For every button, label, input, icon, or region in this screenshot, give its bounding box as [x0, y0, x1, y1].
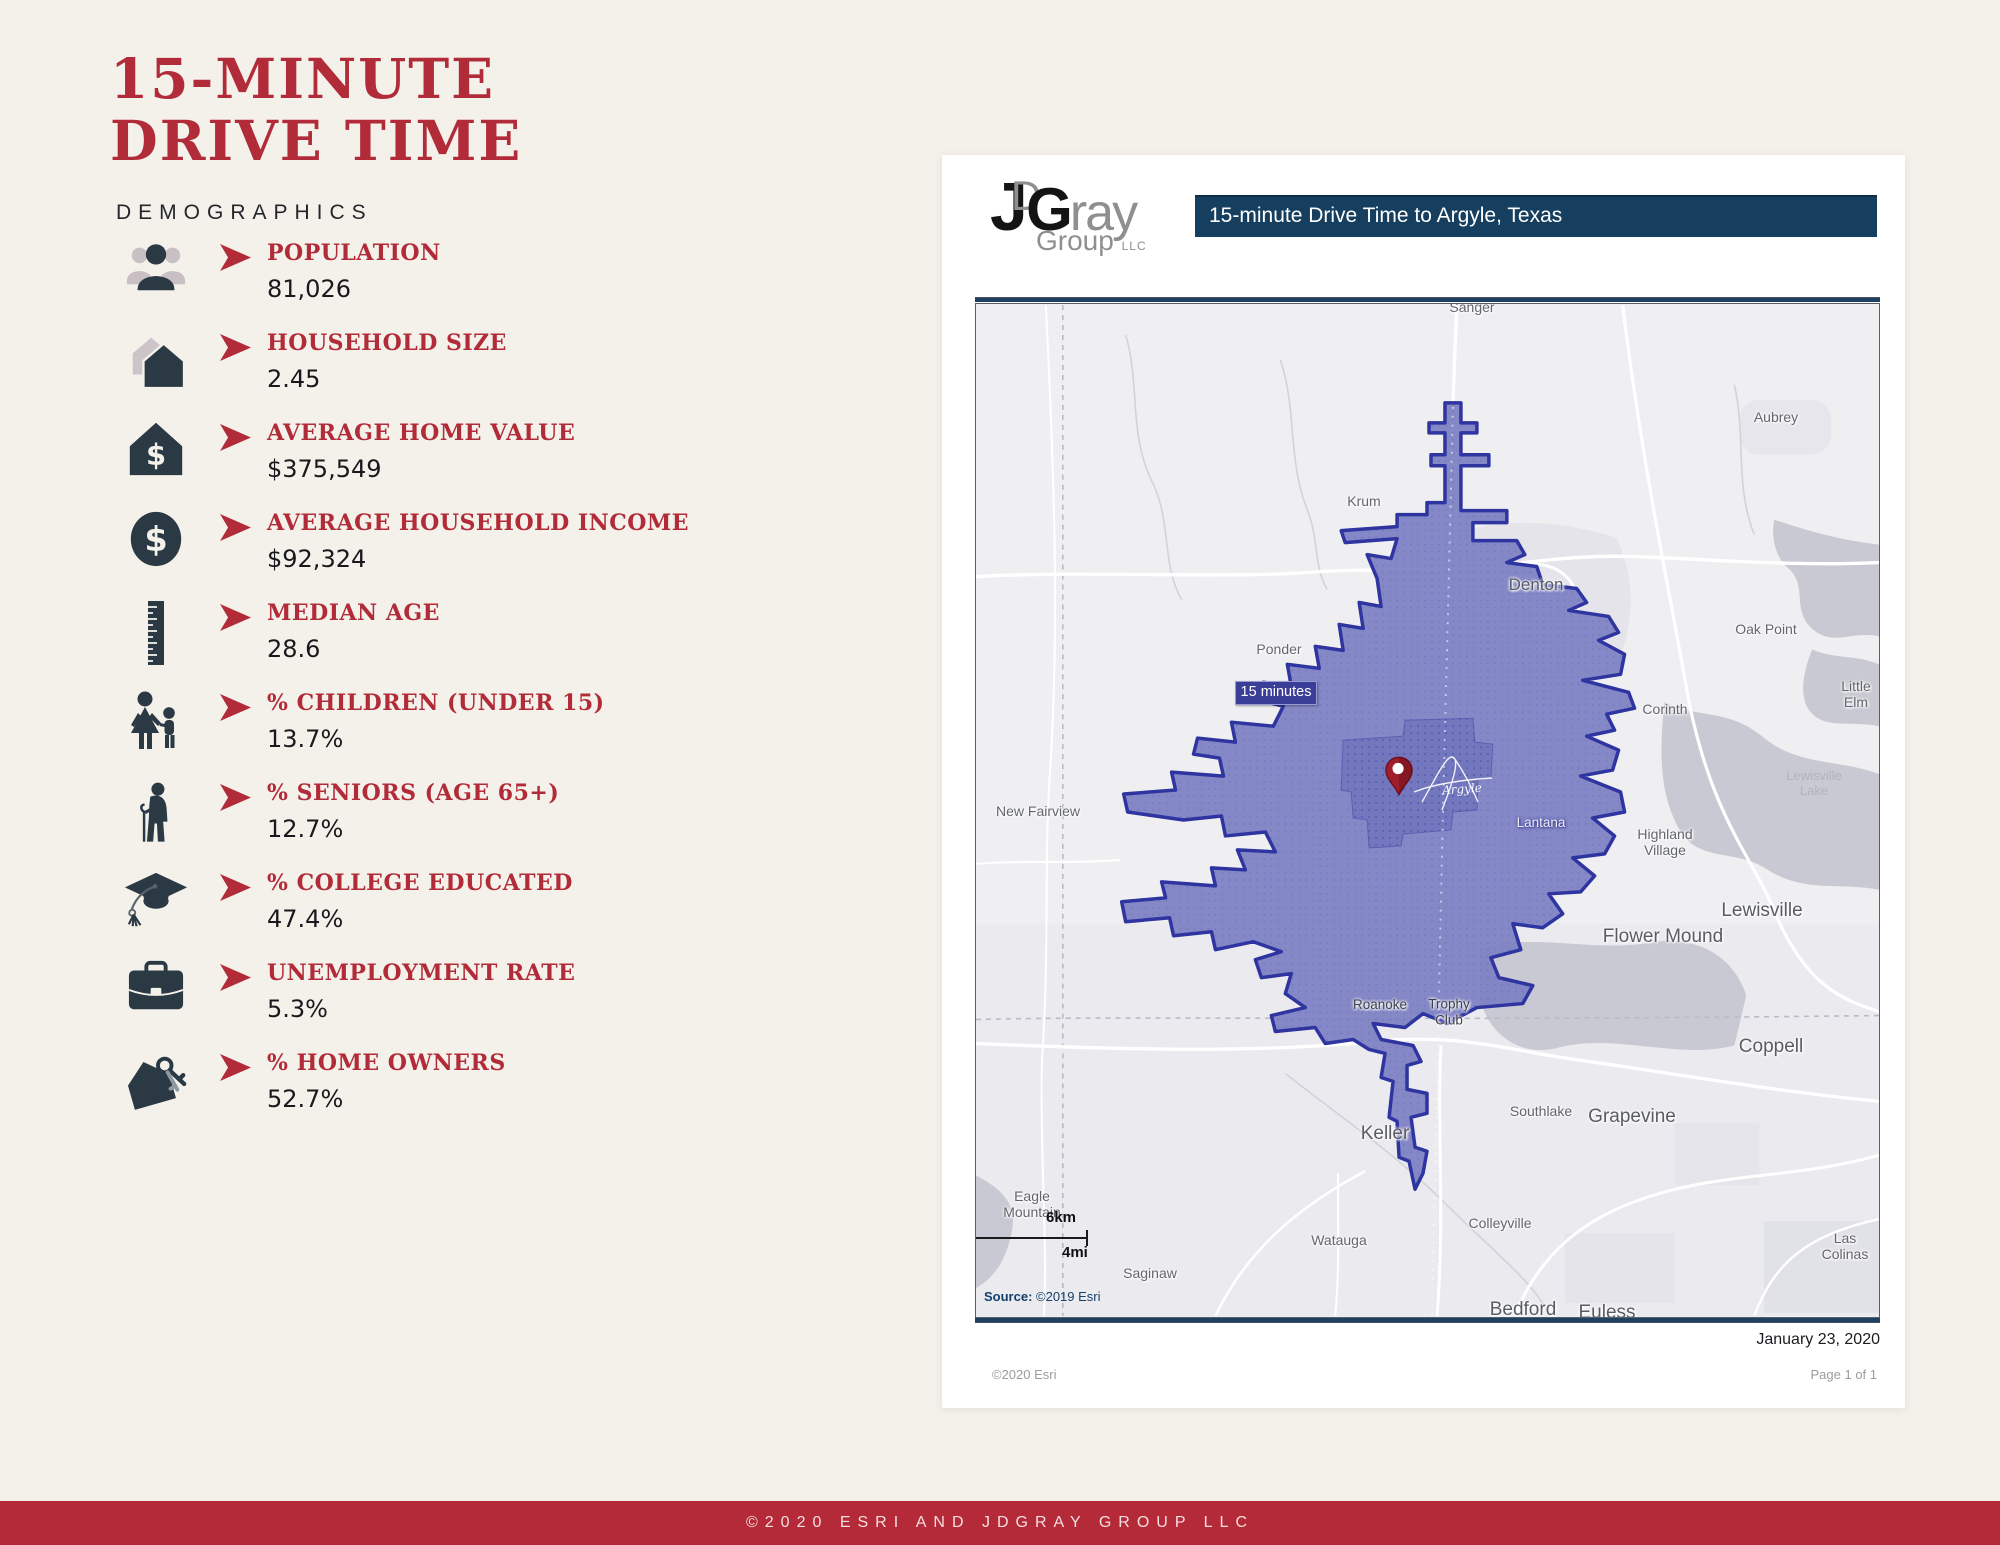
map-town-label: Southlake — [1510, 1103, 1572, 1119]
stat-row: % HOME OWNERS 52.7% — [110, 1048, 790, 1110]
stat-label: POPULATION — [267, 240, 441, 266]
scale-km-label: 6km — [1046, 1209, 1076, 1226]
map-town-label: Saginaw — [1123, 1265, 1177, 1281]
map-frame: Sanger Aubrey Krum Denton Oak Point Pond… — [975, 297, 1880, 1323]
map-town-label: Lantana — [1517, 815, 1566, 831]
map-town-label: Roanoke — [1353, 997, 1407, 1013]
map-town-label: Lewisville — [1721, 900, 1802, 922]
stat-value: 81,026 — [267, 275, 441, 303]
stat-value: 47.4% — [267, 905, 573, 933]
stat-text: AVERAGE HOME VALUE $375,549 — [267, 418, 575, 483]
scale-bar — [976, 1237, 1088, 1239]
stat-text: % COLLEGE EDUCATED 47.4% — [267, 868, 573, 933]
stat-value: 13.7% — [267, 725, 605, 753]
map-town-label: Aubrey — [1754, 409, 1798, 425]
page-title: 15-MINUTEDRIVE TIME — [110, 48, 750, 171]
stat-row: % SENIORS (AGE 65+) 12.7% — [110, 778, 790, 840]
stat-value: 5.3% — [267, 995, 575, 1023]
stat-text: MEDIAN AGE 28.6 — [267, 598, 440, 663]
stat-row: % COLLEGE EDUCATED 47.4% — [110, 868, 790, 930]
esri-credit: ©2020 Esri — [992, 1367, 1057, 1382]
arrowhead-icon — [220, 784, 251, 811]
stat-text: UNEMPLOYMENT RATE 5.3% — [267, 958, 575, 1023]
stat-text: HOUSEHOLD SIZE 2.45 — [267, 328, 507, 393]
map-title: 15-minute Drive Time to Argyle, Texas — [1195, 197, 1877, 235]
stat-row: UNEMPLOYMENT RATE 5.3% — [110, 958, 790, 1020]
stat-text: % HOME OWNERS 52.7% — [267, 1048, 506, 1113]
arrowhead-icon — [220, 964, 251, 991]
footer-text: ©2020 ESRI AND JDGRAY GROUP LLC — [746, 1514, 1254, 1532]
title-line-2: DRIVE TIME — [110, 108, 522, 173]
stat-label: HOUSEHOLD SIZE — [267, 330, 507, 356]
stat-label: % SENIORS (AGE 65+) — [267, 780, 559, 806]
stat-text: AVERAGE HOUSEHOLD INCOME $92,324 — [267, 508, 689, 573]
stat-value: 28.6 — [267, 635, 440, 663]
home-value-icon: $ — [110, 418, 202, 476]
stat-row: $ AVERAGE HOUSEHOLD INCOME $92,324 — [110, 508, 790, 570]
stat-row: % CHILDREN (UNDER 15) 13.7% — [110, 688, 790, 750]
map-town-label: Euless — [1578, 1302, 1635, 1318]
household-icon — [110, 328, 202, 390]
source-prefix: Source: — [984, 1289, 1032, 1304]
map-town-label: New Fairview — [996, 803, 1080, 819]
title-line-1: 15-MINUTE — [110, 46, 495, 111]
drive-time-badge: 15 minutes — [1235, 681, 1317, 705]
jdgray-group-logo: JDGray Group LLC — [990, 173, 1147, 255]
arrowhead-icon — [220, 604, 251, 631]
map-top-rule — [975, 297, 1880, 302]
logo-word-group: Group — [1036, 225, 1114, 256]
argyle-script-label: Argyle — [1442, 781, 1483, 798]
stat-label: AVERAGE HOME VALUE — [267, 420, 575, 446]
map-town-label: Grapevine — [1588, 1106, 1676, 1128]
arrowhead-icon — [220, 514, 251, 541]
arrowhead-icon — [220, 424, 251, 451]
stat-row: HOUSEHOLD SIZE 2.45 — [110, 328, 790, 390]
page-number: Page 1 of 1 — [1811, 1367, 1878, 1382]
map-town-label: Watauga — [1311, 1232, 1367, 1248]
stat-row: POPULATION 81,026 — [110, 238, 790, 300]
arrowhead-icon — [220, 244, 251, 271]
map-town-label: Little Elm — [1841, 678, 1871, 710]
left-column: 15-MINUTEDRIVE TIME DEMOGRAPHICS — [110, 48, 750, 225]
stat-value: $92,324 — [267, 545, 689, 573]
map-town-label: Las Colinas — [1822, 1230, 1869, 1262]
stat-label: AVERAGE HOUSEHOLD INCOME — [267, 510, 689, 536]
children-icon — [110, 688, 202, 756]
logo-subline: Group LLC — [1036, 227, 1147, 255]
map-town-label: Coppell — [1739, 1036, 1803, 1058]
logo-word-llc: LLC — [1122, 239, 1147, 253]
map-town-label: Colleyville — [1468, 1215, 1531, 1231]
footer-bar: ©2020 ESRI AND JDGRAY GROUP LLC — [0, 1501, 2000, 1545]
stats-list: POPULATION 81,026 HOUSEHOLD SIZE 2.45 $ … — [110, 238, 790, 1138]
ruler-icon — [110, 598, 202, 666]
people-icon — [110, 238, 202, 292]
report-date: January 23, 2020 — [1756, 1331, 1880, 1349]
stat-value: 2.45 — [267, 365, 507, 393]
college-icon — [110, 868, 202, 930]
drive-time-map: Sanger Aubrey Krum Denton Oak Point Pond… — [975, 303, 1880, 1318]
scale-mi-label: 4mi — [1062, 1244, 1088, 1261]
map-town-label: Krum — [1347, 493, 1380, 509]
stat-text: POPULATION 81,026 — [267, 238, 441, 303]
source-text: ©2019 Esri — [1032, 1289, 1100, 1304]
map-town-label: Trophy Club — [1428, 996, 1470, 1027]
arrowhead-icon — [220, 334, 251, 361]
map-town-label: Flower Mound — [1603, 926, 1723, 948]
svg-text:$: $ — [144, 520, 167, 559]
arrowhead-icon — [220, 694, 251, 721]
briefcase-icon — [110, 958, 202, 1012]
income-icon: $ — [110, 508, 202, 568]
svg-text:$: $ — [146, 438, 166, 472]
stat-value: $375,549 — [267, 455, 575, 483]
stat-text: % SENIORS (AGE 65+) 12.7% — [267, 778, 559, 843]
map-town-label: Highland Village — [1637, 826, 1692, 858]
stat-label: MEDIAN AGE — [267, 600, 440, 626]
stat-text: % CHILDREN (UNDER 15) 13.7% — [267, 688, 605, 753]
page: { "header": { "title_line1": "15-MINUTE"… — [0, 0, 2000, 1545]
stat-row: MEDIAN AGE 28.6 — [110, 598, 790, 660]
stat-label: UNEMPLOYMENT RATE — [267, 960, 575, 986]
map-source: Source: ©2019 Esri — [984, 1289, 1101, 1304]
map-town-label: Lewisville Lake — [1786, 769, 1842, 799]
map-town-label: Oak Point — [1735, 621, 1796, 637]
page-subtitle: DEMOGRAPHICS — [116, 201, 750, 225]
arrowhead-icon — [220, 1054, 251, 1081]
keys-icon — [110, 1048, 202, 1112]
stat-value: 12.7% — [267, 815, 559, 843]
stat-label: % CHILDREN (UNDER 15) — [267, 690, 605, 716]
argyle-signature-flourish — [1408, 744, 1498, 814]
stat-value: 52.7% — [267, 1085, 506, 1113]
map-bottom-rule — [975, 1318, 1880, 1323]
arrowhead-icon — [220, 874, 251, 901]
seniors-icon — [110, 778, 202, 846]
map-title-banner: 15-minute Drive Time to Argyle, Texas — [1195, 195, 1877, 237]
map-town-label: Ponder — [1256, 641, 1301, 657]
stat-row: $ AVERAGE HOME VALUE $375,549 — [110, 418, 790, 480]
map-town-label: Bedford — [1490, 1299, 1557, 1318]
map-town-label: Corinth — [1642, 701, 1687, 717]
stat-label: % HOME OWNERS — [267, 1050, 506, 1076]
map-town-label: Denton — [1509, 575, 1564, 595]
stat-label: % COLLEGE EDUCATED — [267, 870, 573, 896]
report-card: JDGray Group LLC 15-minute Drive Time to… — [942, 155, 1905, 1408]
map-town-label: Keller — [1361, 1123, 1410, 1145]
map-town-label: Sanger — [1449, 303, 1494, 315]
